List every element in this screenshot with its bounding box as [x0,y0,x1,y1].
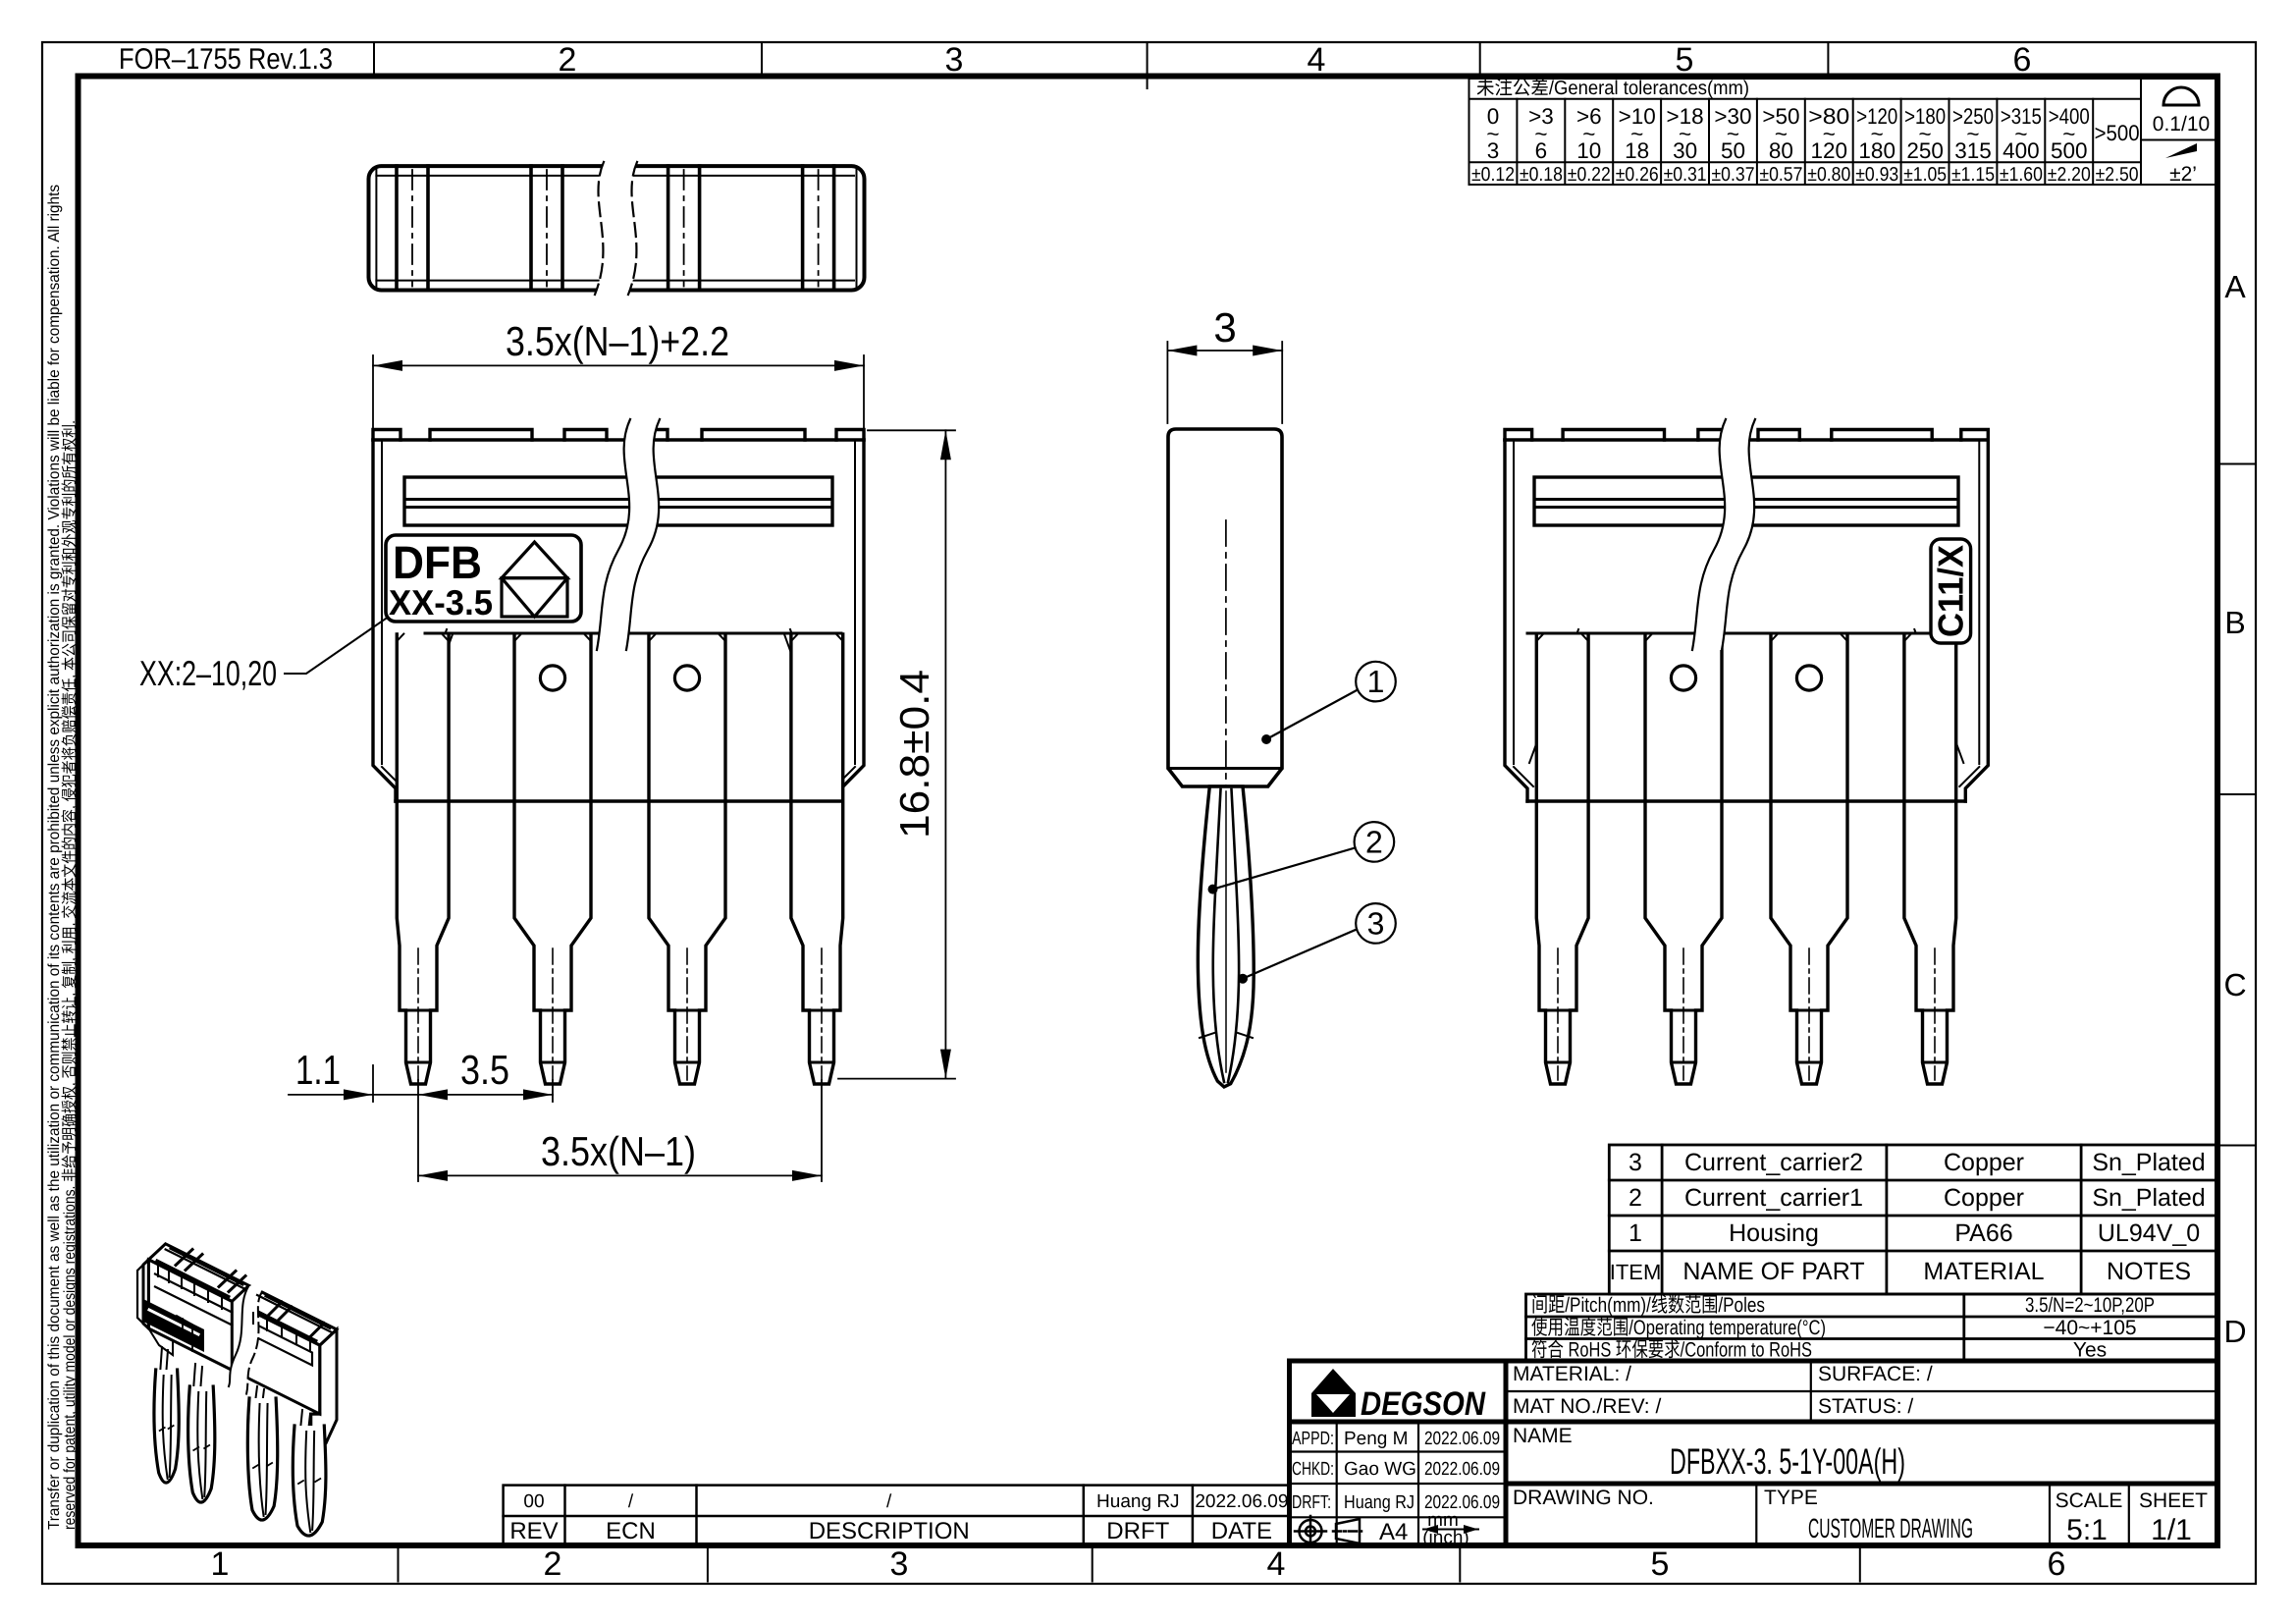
svg-text:NOTES: NOTES [2107,1258,2191,1285]
svg-text:±0.37: ±0.37 [1712,164,1755,186]
svg-text:16.8±0.4: 16.8±0.4 [891,670,937,839]
svg-text:±0.26: ±0.26 [1616,164,1659,186]
svg-text:DESCRIPTION: DESCRIPTION [809,1518,970,1544]
svg-text:10: 10 [1576,138,1601,163]
svg-text:6: 6 [1535,138,1548,163]
svg-text:6: 6 [2048,1545,2066,1583]
svg-text:400: 400 [2002,138,2040,163]
svg-text:A: A [2224,269,2246,304]
svg-text:间距/Pitch(mm)/线数范围/Poles: 间距/Pitch(mm)/线数范围/Poles [1531,1294,1765,1317]
svg-text:±2.20: ±2.20 [2048,164,2091,186]
svg-text:−40~+105: −40~+105 [2043,1317,2136,1339]
svg-text:APPD:: APPD: [1292,1429,1334,1449]
svg-text:FOR–1755 Rev.1.3: FOR–1755 Rev.1.3 [119,43,333,76]
svg-text:DFB: DFB [393,536,482,588]
svg-text:PA66: PA66 [1954,1219,2012,1247]
svg-text:5: 5 [1651,1545,1670,1583]
svg-text:315: 315 [1954,138,1992,163]
svg-text:CUSTOMER DRAWING: CUSTOMER DRAWING [1808,1513,1973,1543]
svg-text:DEGSON: DEGSON [1361,1385,1486,1423]
svg-text:5:1: 5:1 [2066,1514,2108,1546]
svg-text:ITEM: ITEM [1610,1260,1662,1284]
svg-text:±1.05: ±1.05 [1903,164,1947,186]
svg-text:CHKD:: CHKD: [1292,1459,1334,1480]
svg-text:STATUS: /: STATUS: / [1818,1395,1913,1418]
svg-text:DRAWING NO.: DRAWING NO. [1513,1487,1654,1509]
svg-text:/: / [628,1491,634,1512]
svg-text:MATERIAL: /: MATERIAL: / [1513,1363,1631,1385]
svg-text:reserved for patent, utility m: reserved for patent, utility model or de… [61,420,79,1530]
svg-text:XX:2–10,20: XX:2–10,20 [139,653,277,693]
svg-text:Copper: Copper [1944,1184,2024,1212]
svg-text:±0.80: ±0.80 [1807,164,1850,186]
svg-text:3.5/N=2~10P,20P: 3.5/N=2~10P,20P [2025,1294,2155,1317]
svg-text:±0.12: ±0.12 [1471,164,1515,186]
svg-text:符合 RoHS 环保要求/Conform to RoHS: 符合 RoHS 环保要求/Conform to RoHS [1531,1339,1812,1362]
svg-text:Current_carrier2: Current_carrier2 [1684,1149,1863,1176]
svg-text:Yes: Yes [2073,1339,2107,1362]
svg-text:1: 1 [1367,664,1385,699]
svg-text:180: 180 [1858,138,1896,163]
svg-text:3: 3 [1213,304,1236,351]
svg-text:REV: REV [509,1518,558,1544]
svg-text:3: 3 [890,1545,909,1583]
svg-text:50: 50 [1721,138,1745,163]
svg-text:A4: A4 [1379,1519,1408,1545]
svg-text:3.5: 3.5 [460,1047,509,1093]
svg-text:SURFACE: /: SURFACE: / [1818,1363,1933,1385]
svg-text:1.1: 1.1 [295,1047,341,1093]
svg-text:3.5x(N–1)+2.2: 3.5x(N–1)+2.2 [506,318,729,364]
svg-text:±2’: ±2’ [2169,163,2197,186]
svg-text:Current_carrier1: Current_carrier1 [1684,1184,1863,1212]
svg-text:Sn_Plated: Sn_Plated [2092,1149,2205,1176]
svg-text:UL94V_0: UL94V_0 [2098,1219,2200,1247]
svg-text:00: 00 [523,1491,544,1512]
svg-text:500: 500 [2051,138,2088,163]
svg-text:MATERIAL: MATERIAL [1923,1258,2044,1285]
svg-text:Huang RJ: Huang RJ [1096,1491,1180,1512]
svg-text:DRFT:: DRFT: [1292,1492,1331,1513]
svg-text:6: 6 [2013,41,2032,79]
svg-text:DRFT: DRFT [1106,1518,1169,1544]
svg-text:未注公差/General tolerances(mm): 未注公差/General tolerances(mm) [1476,78,1749,99]
svg-text:±0.57: ±0.57 [1759,164,1802,186]
svg-text:Gao WG: Gao WG [1344,1459,1416,1480]
svg-text:4: 4 [1308,41,1326,79]
svg-text:0.1/10: 0.1/10 [2153,113,2210,135]
svg-text:2022.06.09: 2022.06.09 [1424,1459,1500,1480]
svg-text:2: 2 [544,1545,562,1583]
svg-text:4: 4 [1267,1545,1286,1583]
svg-text:Sn_Plated: Sn_Plated [2092,1184,2205,1212]
svg-text:Peng M: Peng M [1344,1429,1408,1449]
svg-text:C11/X: C11/X [1931,545,1971,637]
svg-text:XX-3.5: XX-3.5 [389,582,493,623]
svg-text:3: 3 [1487,138,1500,163]
svg-text:2: 2 [1629,1184,1642,1212]
svg-text:1: 1 [211,1545,230,1583]
svg-text:SHEET: SHEET [2139,1489,2208,1512]
svg-text:±1.15: ±1.15 [1951,164,1995,186]
svg-text:3: 3 [1629,1149,1642,1176]
svg-text:±0.93: ±0.93 [1855,164,1898,186]
svg-text:>500: >500 [2095,121,2140,145]
svg-text:±0.22: ±0.22 [1568,164,1611,186]
svg-text:250: 250 [1906,138,1944,163]
svg-text:/: / [886,1491,892,1512]
svg-text:D: D [2223,1314,2246,1349]
svg-text:80: 80 [1769,138,1793,163]
svg-text:3: 3 [945,41,964,79]
svg-text:30: 30 [1673,138,1697,163]
svg-text:2022.06.09: 2022.06.09 [1195,1491,1288,1512]
svg-text:3: 3 [1367,905,1385,941]
svg-text:±2.50: ±2.50 [2096,164,2139,186]
svg-text:5: 5 [1676,41,1694,79]
svg-text:±0.31: ±0.31 [1664,164,1707,186]
svg-text:使用温度范围/Operating temperature(°: 使用温度范围/Operating temperature(°C) [1531,1317,1826,1339]
svg-text:(inch): (inch) [1422,1528,1469,1548]
svg-text:Copper: Copper [1944,1149,2024,1176]
svg-text:120: 120 [1811,138,1848,163]
svg-text:NAME: NAME [1513,1425,1573,1447]
svg-text:Huang RJ: Huang RJ [1344,1492,1415,1513]
svg-text:3.5x(N–1): 3.5x(N–1) [541,1128,696,1174]
svg-text:Transfer or duplication of thi: Transfer or duplication of this document… [46,185,63,1530]
svg-text:2: 2 [559,41,577,79]
svg-text:ECN: ECN [606,1518,656,1544]
svg-text:1/1: 1/1 [2151,1514,2192,1546]
svg-text:2: 2 [1365,824,1383,859]
svg-text:DFBXX-3. 5-1Y-00A(H): DFBXX-3. 5-1Y-00A(H) [1670,1441,1905,1482]
svg-text:18: 18 [1625,138,1649,163]
svg-text:MAT NO./REV: /: MAT NO./REV: / [1513,1395,1661,1418]
svg-text:2022.06.09: 2022.06.09 [1424,1429,1500,1449]
svg-text:1: 1 [1629,1219,1642,1247]
svg-text:DATE: DATE [1211,1518,1272,1544]
svg-text:±0.18: ±0.18 [1520,164,1563,186]
svg-text:B: B [2224,605,2245,640]
svg-text:SCALE: SCALE [2056,1489,2123,1512]
svg-text:NAME OF PART: NAME OF PART [1682,1258,1864,1285]
svg-text:C: C [2223,967,2246,1002]
svg-text:TYPE: TYPE [1764,1487,1818,1509]
svg-text:Housing: Housing [1729,1219,1819,1247]
svg-text:±1.60: ±1.60 [2000,164,2043,186]
